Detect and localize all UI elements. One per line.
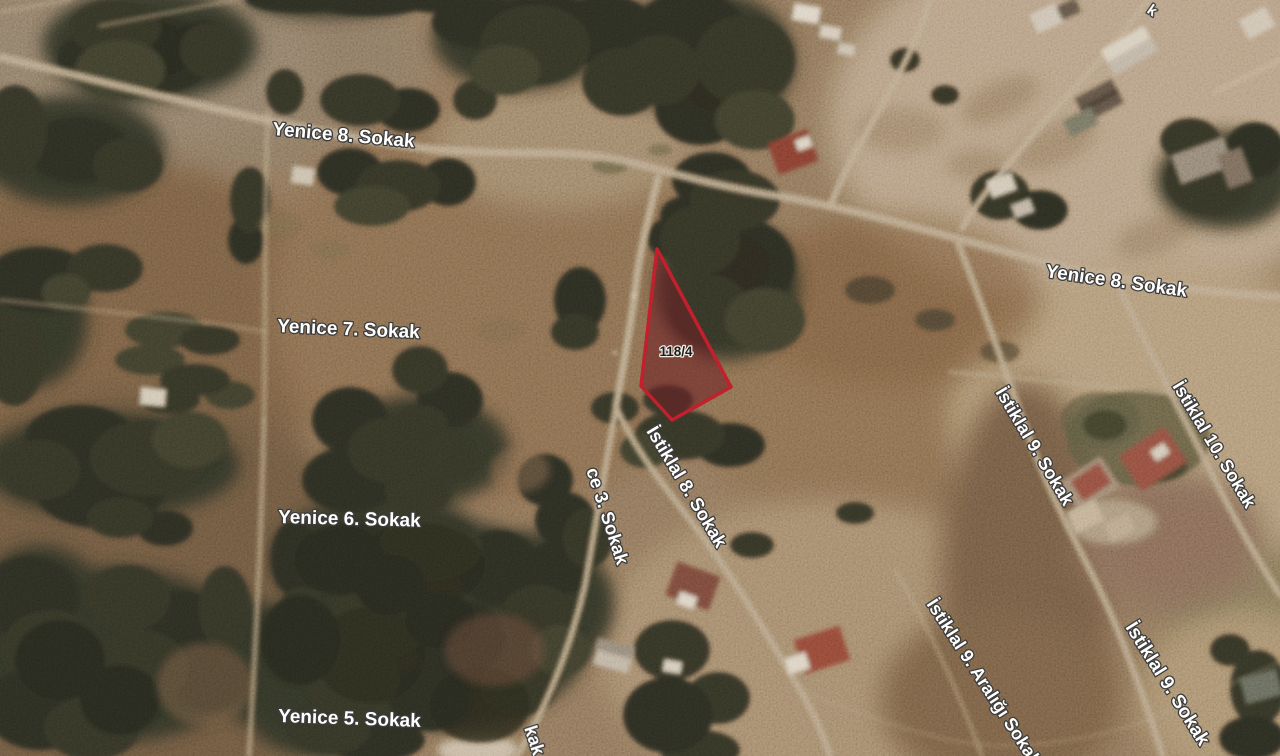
svg-text:118/4: 118/4 [659,344,693,359]
svg-text:Yenice 6. Sokak: Yenice 6. Sokak [278,507,422,532]
